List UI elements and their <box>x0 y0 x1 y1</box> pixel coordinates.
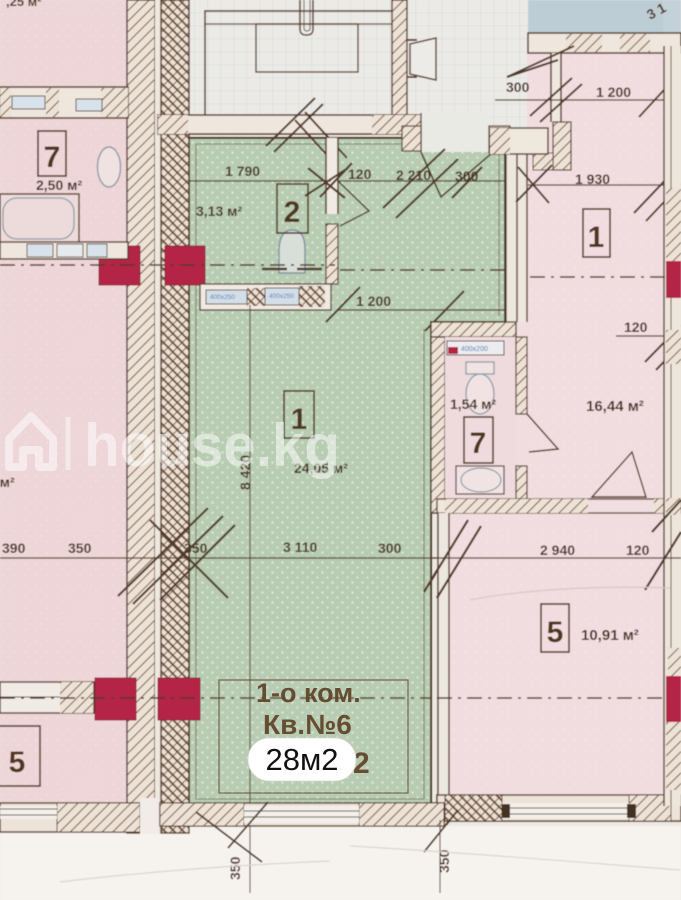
svg-text:Кв.№6: Кв.№6 <box>263 709 352 740</box>
svg-text:1-о ком.: 1-о ком. <box>256 678 361 708</box>
svg-text:house.kg: house.kg <box>84 412 340 479</box>
svg-text:28м2: 28м2 <box>265 742 338 777</box>
